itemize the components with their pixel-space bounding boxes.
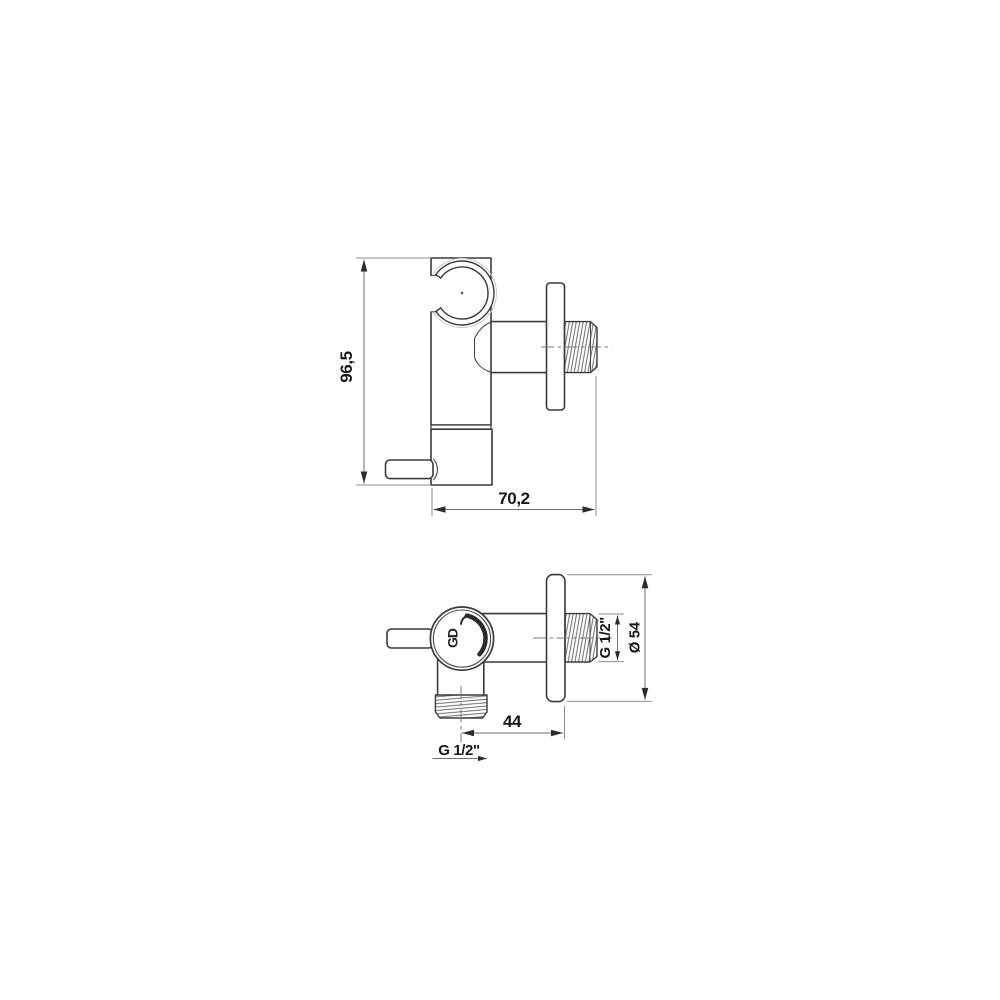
side-view: 96,5 70,2 <box>337 258 612 516</box>
outlet-thread-label: G 1/2" <box>438 742 480 759</box>
brand-logo: GD <box>445 628 461 648</box>
holder-center-dot <box>461 292 464 295</box>
handle-lever-plan <box>387 629 433 648</box>
inlet-thread-dimension: G 1/2" <box>597 614 624 662</box>
technical-drawing: 96,5 70,2 GD <box>0 0 1000 1000</box>
height-label: 96,5 <box>337 351 356 383</box>
handle-base-side <box>431 429 492 485</box>
drawing-sheet: 96,5 70,2 GD <box>0 0 1000 1000</box>
valve-body-side <box>431 258 491 425</box>
outlet-thread-callout: G 1/2" <box>433 742 488 759</box>
inlet-pipe-side <box>491 322 547 373</box>
dimension-height: 96,5 <box>337 258 431 485</box>
flange-diameter-label: Ø 54 <box>627 621 644 653</box>
offset-label: 44 <box>503 712 522 731</box>
width-label: 70,2 <box>498 489 530 508</box>
holder-notch <box>429 276 438 312</box>
handle-lever-side <box>386 460 434 479</box>
inlet-thread-label: G 1/2" <box>597 617 614 659</box>
plan-view: GD 44 G 1/2" G 1/2" Ø <box>387 575 652 759</box>
